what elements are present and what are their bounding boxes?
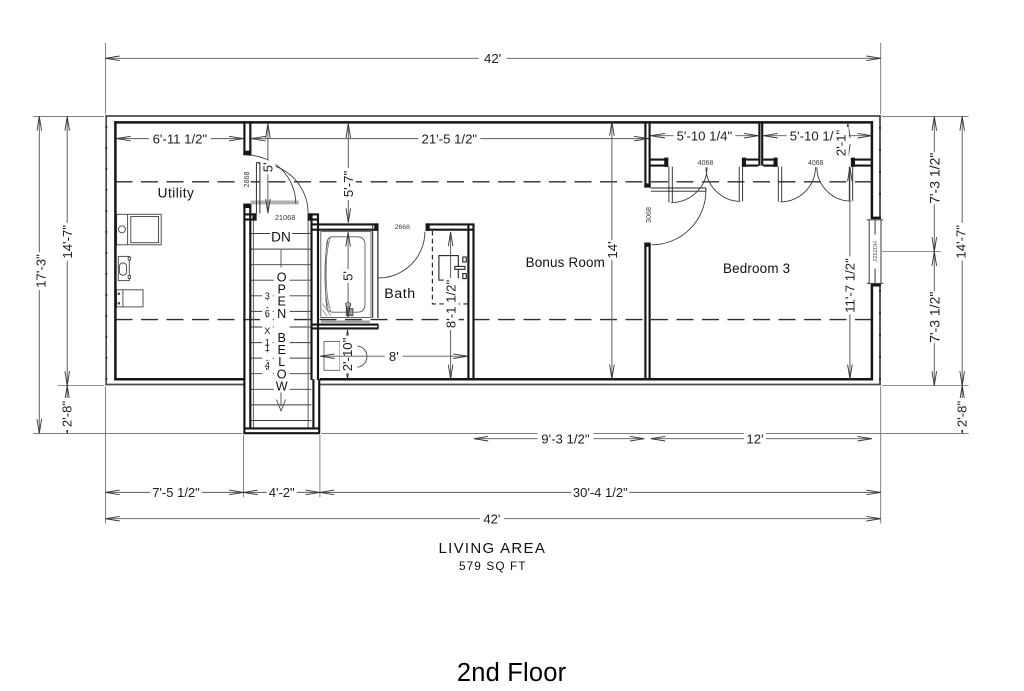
svg-text:14'-7": 14'-7" [60,225,75,259]
svg-text:21068: 21068 [275,213,296,222]
svg-text:": " [266,366,269,376]
svg-text:5': 5' [341,271,356,281]
svg-text:8'-1 1/2": 8'-1 1/2" [444,280,459,329]
svg-text:17'-3": 17'-3" [34,254,49,288]
svg-text:2668: 2668 [395,224,410,231]
svg-text:2'-10": 2'-10" [340,337,355,371]
svg-text:579 SQ FT: 579 SQ FT [459,559,527,573]
svg-text:30'-4 1/2": 30'-4 1/2" [573,485,628,500]
svg-text:42': 42' [483,511,500,526]
svg-text:Bedroom 3: Bedroom 3 [723,261,790,276]
svg-text:2'-8": 2'-8" [59,401,74,428]
svg-text:6'-11 1/2": 6'-11 1/2" [153,131,208,146]
svg-text:11'-7 1/2": 11'-7 1/2" [843,258,858,313]
svg-text:8': 8' [389,349,399,364]
svg-text:DN: DN [271,229,291,244]
svg-text:7'-3 1/2": 7'-3 1/2" [926,153,942,204]
svg-text:2nd Floor: 2nd Floor [457,659,567,687]
svg-text:42': 42' [484,51,501,66]
svg-text:": " [266,314,269,324]
svg-text:7'-3 1/2": 7'-3 1/2" [926,292,942,343]
svg-text:5'-10 1/4": 5'-10 1/4" [677,128,733,143]
svg-text:2'-1": 2'-1" [834,130,849,157]
svg-text:Bonus Room: Bonus Room [526,255,605,270]
svg-text:3068: 3068 [644,207,653,223]
svg-text:4'-2": 4'-2" [269,485,295,500]
svg-text:2'-8": 2'-8" [955,401,970,428]
svg-text:X: X [264,326,270,336]
svg-text:LIVING AREA: LIVING AREA [438,540,546,557]
svg-text:9'-3 1/2": 9'-3 1/2" [541,431,590,446]
svg-text:5': 5' [261,162,276,172]
svg-text:W: W [276,379,288,393]
svg-text:21'-5 1/2": 21'-5 1/2" [422,131,478,146]
svg-text:14': 14' [605,241,620,258]
svg-text:12': 12' [746,431,763,446]
svg-text:5'-7": 5'-7" [341,171,356,198]
svg-text:2868: 2868 [242,172,251,188]
svg-text:7'-5 1/2": 7'-5 1/2" [152,485,200,500]
svg-text:4068: 4068 [698,160,714,167]
svg-text:Bath: Bath [384,286,416,302]
svg-text:N: N [277,307,286,321]
svg-text:Utility: Utility [158,185,195,200]
svg-text:2252DH: 2252DH [873,241,879,262]
svg-text:14'-7": 14'-7" [953,225,968,259]
svg-text:4068: 4068 [808,160,824,167]
